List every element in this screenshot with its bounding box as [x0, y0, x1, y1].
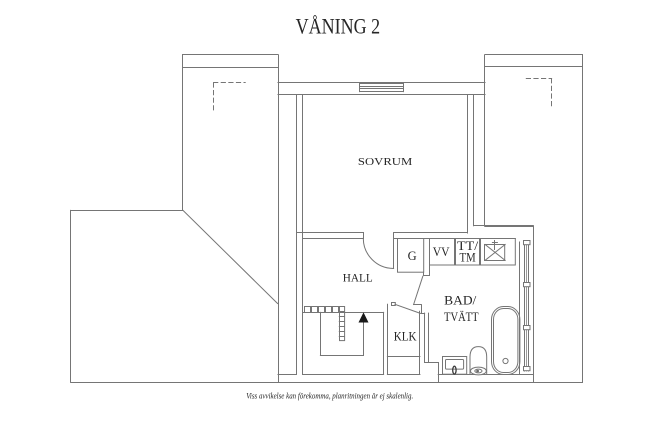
svg-text:KLK: KLK — [394, 330, 417, 344]
svg-text:VÅNING 2: VÅNING 2 — [296, 14, 381, 39]
svg-text:SOVRUM: SOVRUM — [358, 156, 413, 168]
svg-text:G: G — [408, 249, 417, 263]
svg-text:TVÄTT: TVÄTT — [444, 310, 479, 324]
svg-text:Viss avvikelse kan förekomma,: Viss avvikelse kan förekomma, planritnin… — [246, 391, 413, 401]
svg-text:BAD/: BAD/ — [444, 294, 477, 308]
svg-text:HALL: HALL — [343, 271, 373, 285]
svg-text:VV: VV — [433, 245, 450, 259]
svg-text:TM: TM — [460, 251, 476, 265]
